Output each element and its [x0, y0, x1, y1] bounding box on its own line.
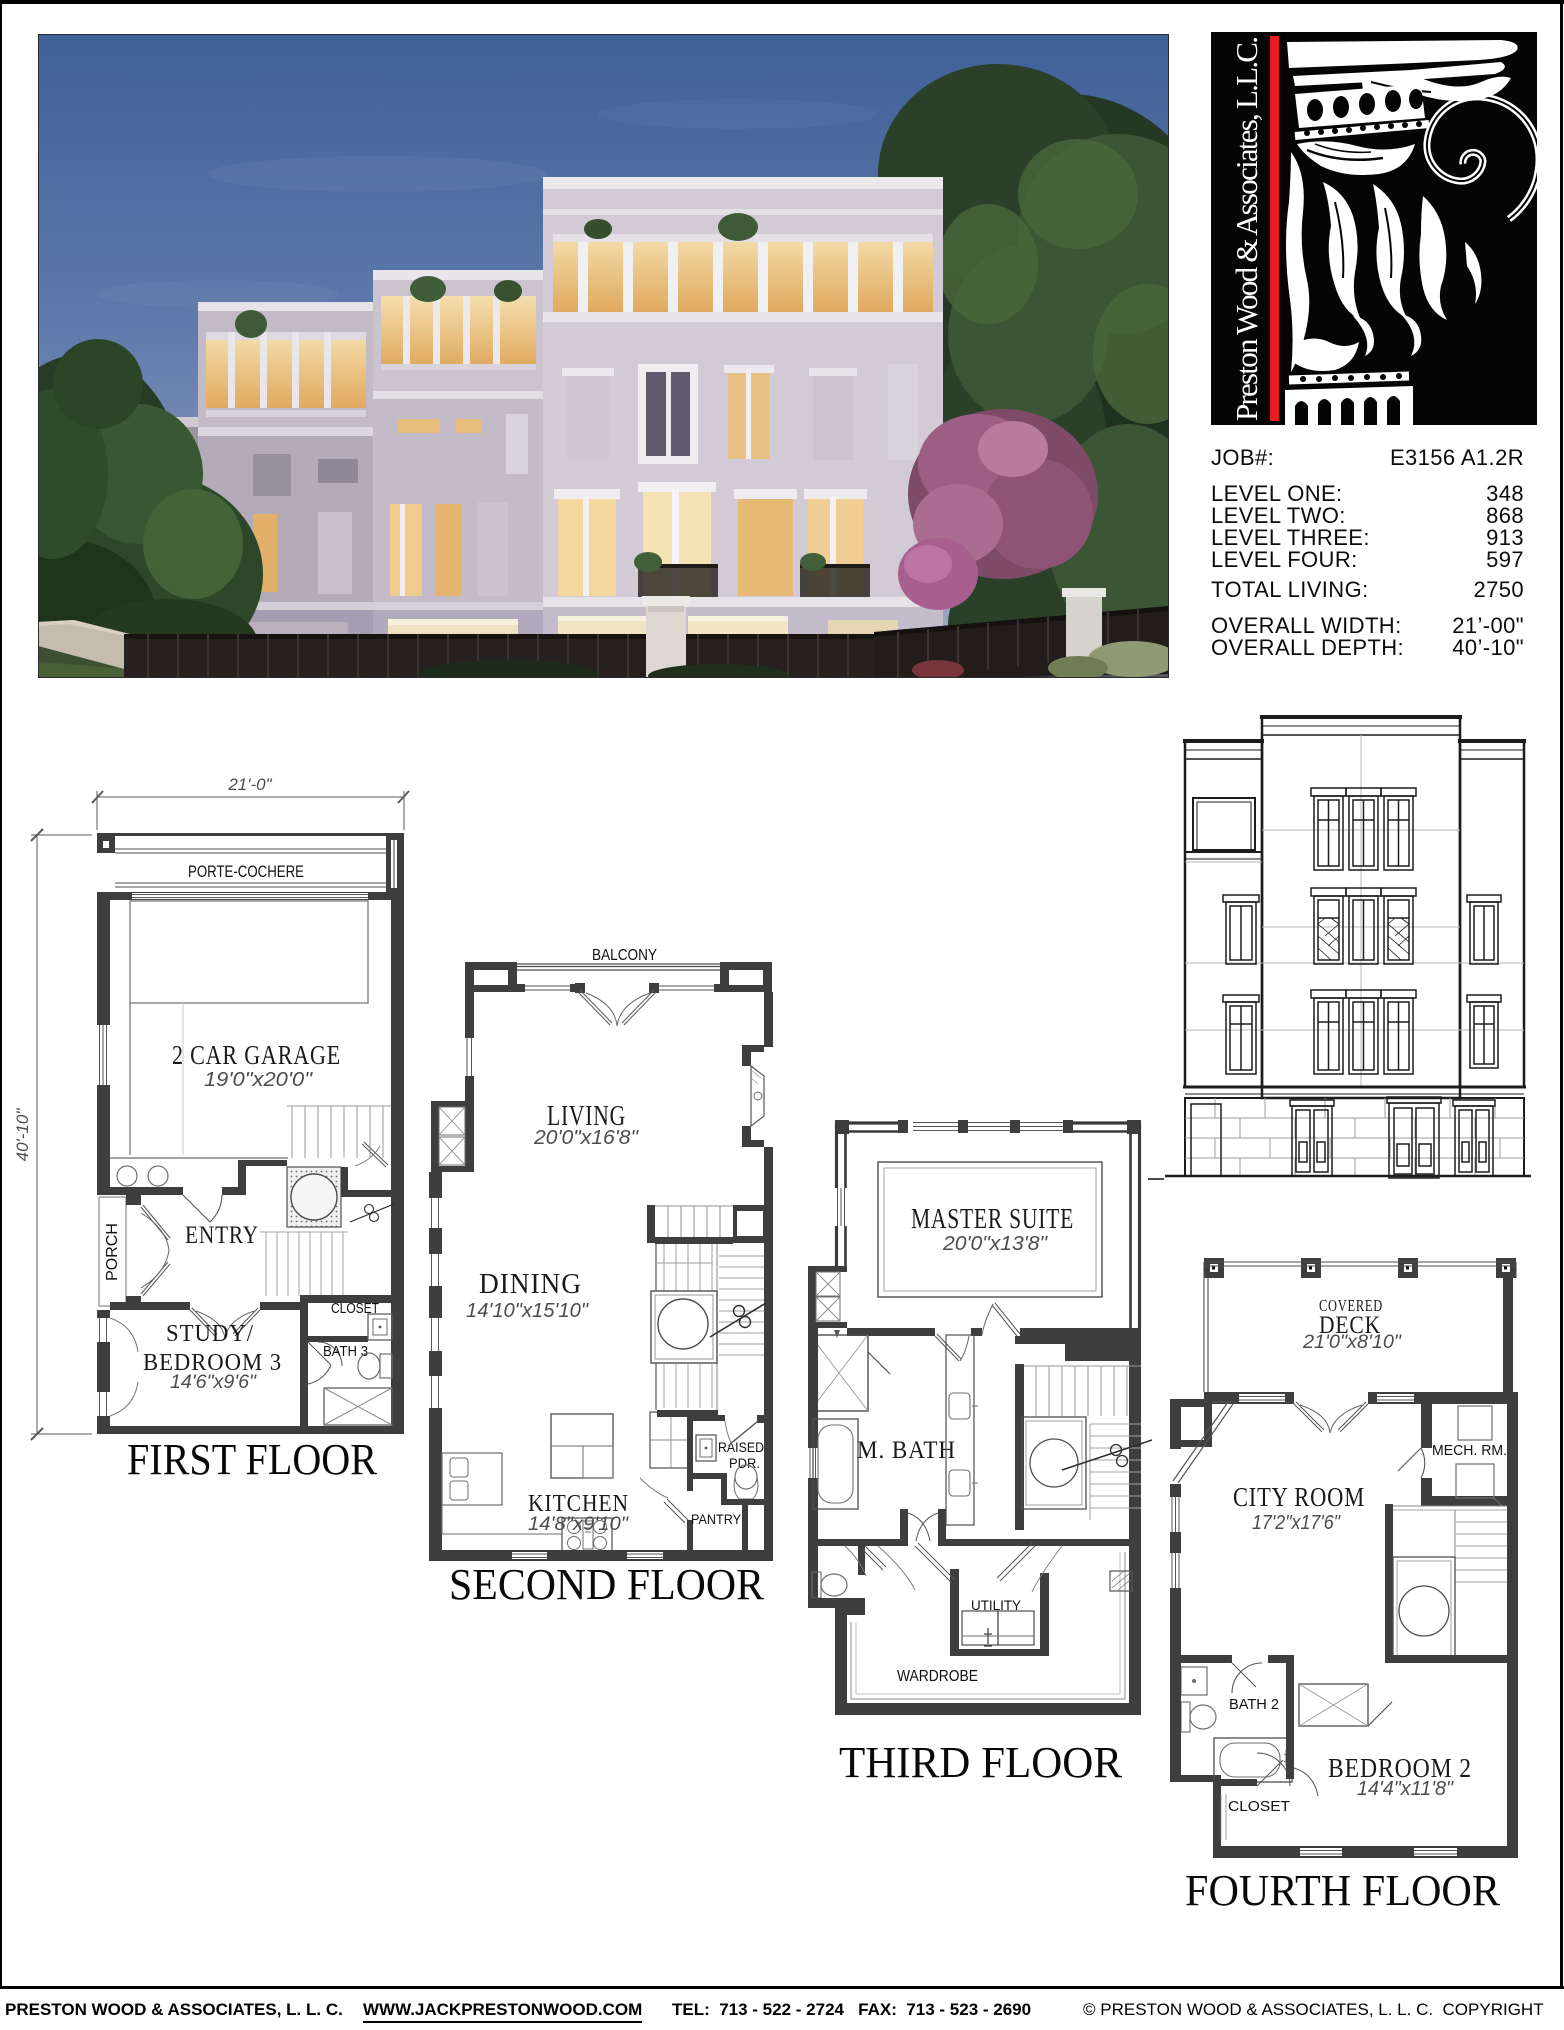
svg-text:20'0"x16'8": 20'0"x16'8" — [533, 1127, 639, 1149]
svg-text:PORTE-COCHERE: PORTE-COCHERE — [188, 862, 304, 881]
svg-text:RAISED: RAISED — [718, 1439, 764, 1455]
svg-text:THIRD FLOOR: THIRD FLOOR — [839, 1738, 1123, 1787]
svg-text:MECH. RM.: MECH. RM. — [1432, 1442, 1507, 1459]
svg-text:DINING: DINING — [479, 1268, 582, 1300]
svg-text:CLOSET: CLOSET — [1228, 1798, 1290, 1815]
svg-text:SECOND FLOOR: SECOND FLOOR — [449, 1560, 765, 1609]
svg-text:PORCH: PORCH — [104, 1223, 121, 1281]
svg-text:FOURTH FLOOR: FOURTH FLOOR — [1185, 1866, 1501, 1915]
svg-text:14'6"x9'6": 14'6"x9'6" — [170, 1372, 257, 1393]
svg-text:MASTER SUITE: MASTER SUITE — [911, 1203, 1074, 1235]
svg-text:14'4"x11'8": 14'4"x11'8" — [1357, 1778, 1454, 1800]
svg-text:ENTRY: ENTRY — [185, 1222, 259, 1249]
svg-text:WARDROBE: WARDROBE — [897, 1668, 978, 1685]
svg-text:21'-0": 21'-0" — [227, 775, 272, 794]
svg-text:UTILITY: UTILITY — [971, 1597, 1022, 1613]
svg-text:14'10"x15'10": 14'10"x15'10" — [466, 1300, 589, 1322]
svg-text:CITY ROOM: CITY ROOM — [1233, 1482, 1365, 1512]
svg-text:20'0"x13'8": 20'0"x13'8" — [942, 1233, 1048, 1255]
svg-text:17'2"x17'6": 17'2"x17'6" — [1252, 1512, 1341, 1534]
svg-text:M. BATH: M. BATH — [857, 1437, 956, 1464]
svg-text:2 CAR GARAGE: 2 CAR GARAGE — [172, 1040, 341, 1070]
svg-text:PANTRY: PANTRY — [691, 1511, 742, 1527]
svg-text:BATH 2: BATH 2 — [1229, 1696, 1279, 1713]
svg-text:FIRST FLOOR: FIRST FLOOR — [127, 1435, 378, 1484]
svg-text:BALCONY: BALCONY — [592, 947, 657, 964]
svg-text:19'0"x20'0": 19'0"x20'0" — [204, 1069, 313, 1091]
svg-text:40'-10": 40'-10" — [13, 1108, 32, 1162]
svg-text:21'0"x8'10": 21'0"x8'10" — [1302, 1332, 1402, 1353]
svg-text:14'8"x9'10": 14'8"x9'10" — [528, 1514, 629, 1535]
svg-text:STUDY/: STUDY/ — [166, 1321, 254, 1347]
svg-text:PDR.: PDR. — [729, 1455, 760, 1471]
